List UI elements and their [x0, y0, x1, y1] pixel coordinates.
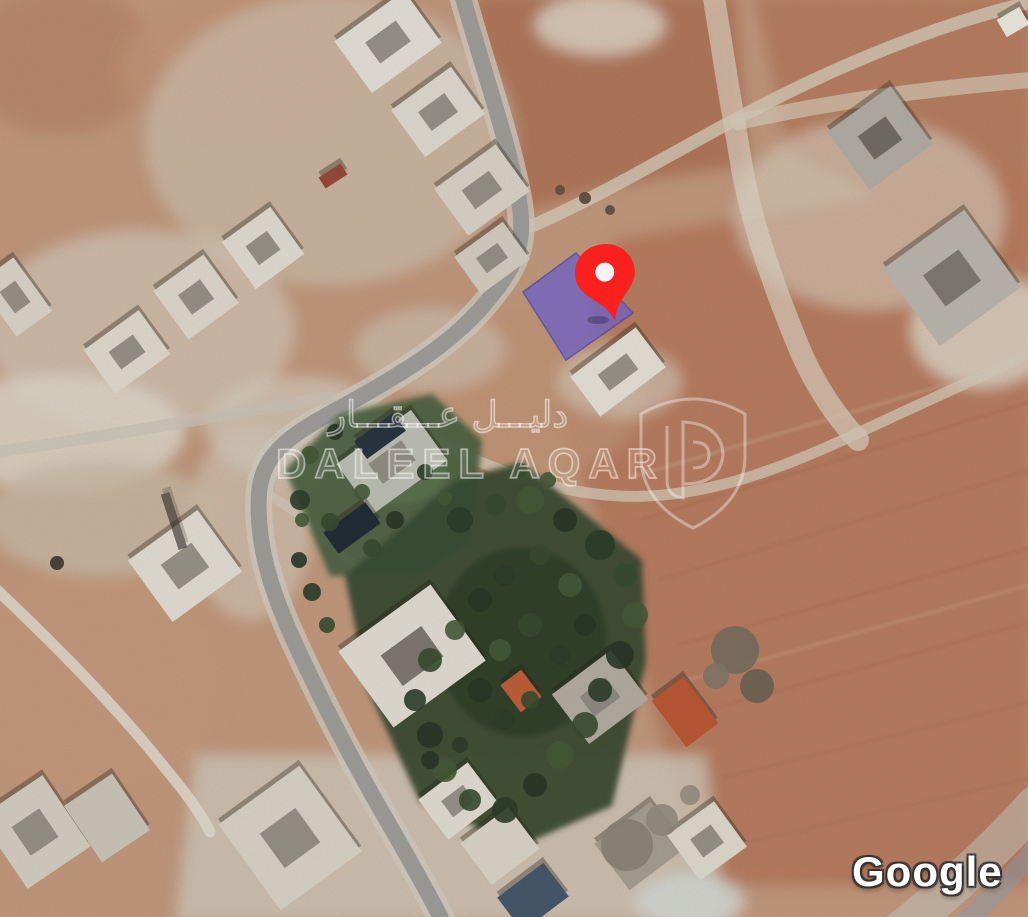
google-logo: Google [852, 848, 1003, 896]
grain-overlay [0, 0, 1028, 917]
pin-shadow [587, 316, 609, 324]
satellite-map[interactable] [0, 0, 1028, 917]
map-container: دليـــل عـــقـــار DALEEL AQAR Google [0, 0, 1028, 917]
